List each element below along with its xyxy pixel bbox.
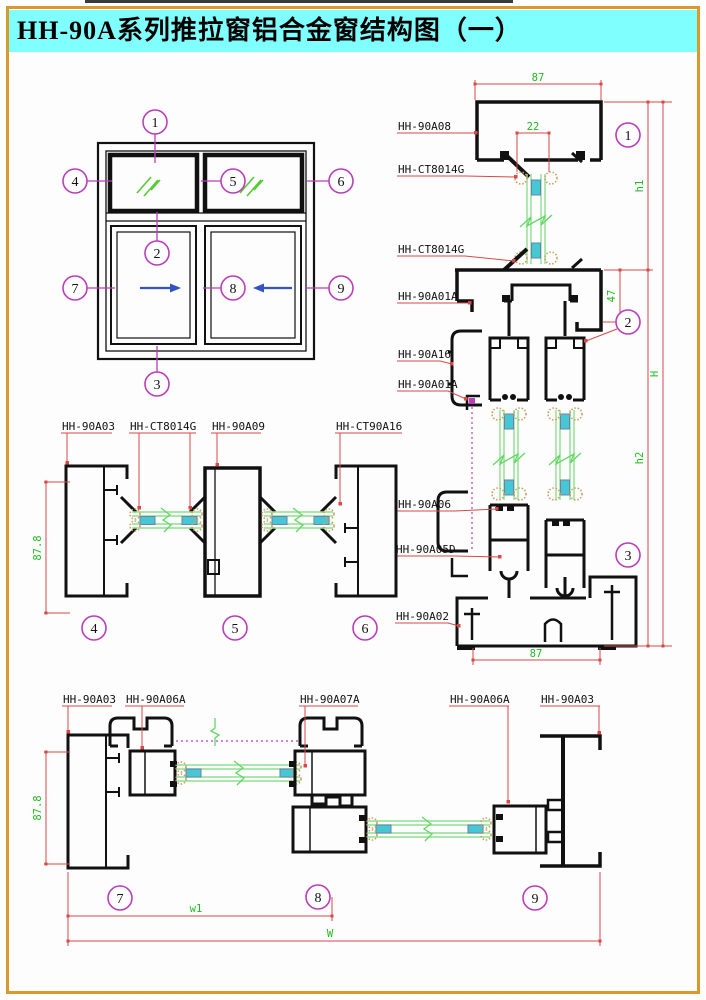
part-label: HH-CT8014G bbox=[130, 420, 196, 433]
dim-depth: 87.8 bbox=[32, 535, 44, 560]
glass-band-right bbox=[262, 508, 334, 532]
glazing-hook-lower bbox=[572, 259, 582, 268]
mid-horizontal-section: 87.8 HH-90A03 HH-CT8014G HH-90A09 HH-CT9… bbox=[32, 420, 402, 640]
dim-top-width: 87 bbox=[532, 72, 545, 84]
profile-interlock-lower bbox=[293, 807, 366, 852]
callout-7: 7 bbox=[63, 276, 87, 300]
glass-unit-top bbox=[515, 172, 557, 264]
glass-band-lower bbox=[367, 817, 491, 841]
callout-4-section: 4 bbox=[82, 616, 106, 640]
dim-w1: w1 bbox=[190, 903, 203, 915]
profile-transom bbox=[455, 270, 601, 330]
part-label: HH-90A01A bbox=[398, 290, 458, 303]
bottom-horizontal-section: 87.8 w1 W HH-90A03 HH-90A06A HH-90A07A H… bbox=[32, 693, 602, 946]
svg-text:5: 5 bbox=[232, 622, 239, 637]
part-label: HH-90A03 bbox=[541, 693, 594, 706]
callout-6: 6 bbox=[329, 169, 353, 193]
callout-2-section: 2 bbox=[616, 310, 640, 334]
drawing-sheet: HH-90A系列推拉窗铝合金窗结构图（一） 1 bbox=[0, 0, 706, 1000]
technical-drawing: 1 4 5 6 2 7 8 9 3 bbox=[0, 0, 706, 1000]
sash-bottom-rail-left bbox=[490, 505, 528, 579]
callout-3: 3 bbox=[145, 372, 169, 396]
part-label: HH-90A06A bbox=[450, 693, 510, 706]
part-label: HH-90A16 bbox=[398, 348, 451, 361]
part-label: HH-CT8014G bbox=[398, 163, 464, 176]
slide-arrow-left-icon bbox=[253, 284, 292, 293]
svg-text:1: 1 bbox=[152, 116, 159, 131]
bs-part-labels: HH-90A03 HH-90A06A HH-90A07A HH-90A06A H… bbox=[62, 693, 601, 804]
svg-text:2: 2 bbox=[154, 247, 161, 262]
part-label: HH-90A05D bbox=[396, 543, 456, 556]
callout-9: 9 bbox=[329, 276, 353, 300]
part-label: HH-90A07A bbox=[300, 693, 360, 706]
profile-track-cover-left bbox=[110, 718, 172, 746]
profile-track-cover-mid bbox=[300, 718, 362, 746]
callout-6-section: 6 bbox=[353, 616, 377, 640]
part-label: HH-90A03 bbox=[63, 693, 116, 706]
svg-text:6: 6 bbox=[362, 622, 369, 637]
bs-dimensions: 87.8 w1 W bbox=[32, 751, 602, 947]
interlock-hooks bbox=[312, 795, 352, 806]
glass-hatch-left bbox=[137, 177, 160, 196]
callout-3-section: 3 bbox=[616, 543, 640, 567]
dim-h1: h1 bbox=[634, 180, 646, 193]
svg-text:9: 9 bbox=[338, 282, 345, 297]
svg-text:8: 8 bbox=[315, 891, 322, 906]
seal-break bbox=[211, 718, 219, 746]
glass-band-upper bbox=[176, 761, 301, 785]
ms-dimensions: 87.8 bbox=[32, 481, 70, 615]
part-label: HH-90A06 bbox=[398, 498, 451, 511]
dim-h2: h2 bbox=[634, 452, 646, 465]
callout-9-section: 9 bbox=[523, 886, 547, 910]
vertical-section: 87 22 h1 47 h2 H 87 HH-90A08 HH-CT bbox=[395, 72, 672, 665]
dim-bottom-width: 87 bbox=[530, 648, 543, 660]
profile-stile-06A-right bbox=[494, 806, 546, 853]
profile-mullion-90A09 bbox=[205, 468, 260, 596]
window-elevation: 1 4 5 6 2 7 8 9 3 bbox=[63, 110, 353, 396]
slide-arrow-right-icon bbox=[140, 284, 181, 293]
callout-8: 8 bbox=[221, 276, 245, 300]
profile-stile-06A-left bbox=[130, 751, 175, 795]
svg-text:7: 7 bbox=[72, 282, 79, 297]
dim-depth-2: 87.8 bbox=[32, 795, 44, 820]
callout-leader-lines bbox=[87, 134, 329, 372]
part-label: HH-90A02 bbox=[396, 610, 449, 623]
callout-1: 1 bbox=[143, 110, 167, 134]
bracket-bottom bbox=[452, 558, 468, 576]
transom-lines bbox=[106, 213, 306, 221]
callout-7-section: 7 bbox=[108, 886, 132, 910]
svg-text:4: 4 bbox=[72, 175, 79, 190]
part-label: HH-CT8014G bbox=[398, 243, 464, 256]
part-label: HH-CT90A16 bbox=[336, 420, 402, 433]
transom-channel bbox=[504, 285, 578, 301]
callout-5-section: 5 bbox=[223, 616, 247, 640]
glass-unit-lower-right bbox=[548, 408, 582, 500]
sash-stems bbox=[509, 301, 565, 336]
part-label: HH-90A08 bbox=[398, 120, 451, 133]
fixed-panel-left bbox=[110, 155, 197, 211]
glass-unit-lower-left bbox=[492, 408, 526, 500]
callout-8-section: 8 bbox=[306, 885, 330, 909]
svg-text:1: 1 bbox=[625, 129, 632, 144]
callout-1-section: 1 bbox=[616, 123, 640, 147]
part-label: HH-90A09 bbox=[212, 420, 265, 433]
callout-4: 4 bbox=[63, 169, 87, 193]
glass-band-left bbox=[130, 508, 202, 532]
dim-47: 47 bbox=[606, 290, 618, 303]
profile-jamb-right-2 bbox=[540, 736, 600, 866]
dim-glazing-width: 22 bbox=[527, 121, 540, 133]
part-label: HH-90A06A bbox=[126, 693, 186, 706]
sash-right bbox=[205, 226, 301, 344]
svg-text:5: 5 bbox=[230, 175, 237, 190]
svg-text:8: 8 bbox=[230, 282, 237, 297]
svg-text:7: 7 bbox=[117, 892, 124, 907]
svg-text:3: 3 bbox=[625, 549, 632, 564]
part-label: HH-90A01A bbox=[398, 378, 458, 391]
callout-2: 2 bbox=[145, 241, 169, 265]
svg-text:2: 2 bbox=[625, 316, 632, 331]
profile-cover-90A16 bbox=[448, 331, 482, 405]
part-label: HH-90A03 bbox=[62, 420, 115, 433]
callout-5: 5 bbox=[221, 169, 245, 193]
svg-text:9: 9 bbox=[532, 892, 539, 907]
fixed-panel-right bbox=[205, 155, 302, 211]
dim-H: H bbox=[649, 371, 661, 377]
dim-W: W bbox=[327, 928, 334, 940]
svg-text:4: 4 bbox=[91, 622, 98, 637]
svg-text:3: 3 bbox=[154, 378, 161, 393]
svg-text:6: 6 bbox=[338, 175, 345, 190]
